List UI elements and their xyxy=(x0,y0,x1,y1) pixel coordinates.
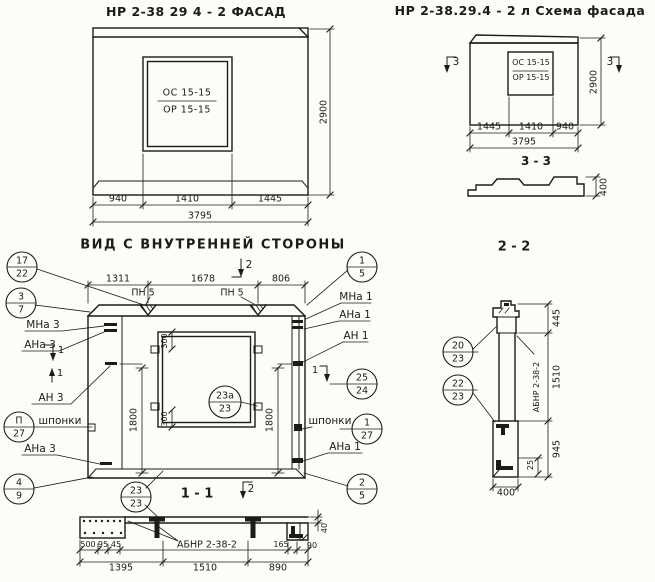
label-mna3: МНа 3 xyxy=(26,320,59,331)
label-ana3-upper: АНа 3 xyxy=(24,340,56,351)
scheme-window-mark-bottom: ОР 15-15 xyxy=(513,74,550,82)
callout-4-9-bottom: 9 xyxy=(16,491,22,501)
callout-17-22-top: 17 xyxy=(16,256,28,266)
label-mna1: МНа 1 xyxy=(339,292,372,303)
label-shponki-right: шпонки xyxy=(309,416,352,427)
s11-dim-45: 45 xyxy=(111,541,121,549)
callout-20-23-top: 20 xyxy=(452,341,464,351)
lifting-loop-label-1: ПН 5 xyxy=(131,288,154,298)
scheme-window-mark-top: ОС 15-15 xyxy=(512,59,550,67)
callout-1-27-bottom: 27 xyxy=(361,431,373,441)
drawing-linework xyxy=(0,0,655,582)
section2-mark-bottom: 2 xyxy=(248,484,255,495)
s11-dim-40: 40 xyxy=(321,523,329,533)
facade-dim-1445: 1445 xyxy=(258,194,282,204)
s11-dim-1510: 1510 xyxy=(193,563,217,573)
section-2-2-title: 2 - 2 xyxy=(498,241,531,254)
label-shponki-left: шпонки xyxy=(39,416,82,427)
scheme-dim-2900: 2900 xyxy=(589,70,599,94)
part-label-abnr: АБНР 2-38-2 xyxy=(177,540,237,550)
callout-1-27-top: 1 xyxy=(364,418,370,428)
section-1-1-title: 1 - 1 xyxy=(181,488,214,501)
label-ana1-upper: АНа 1 xyxy=(339,310,371,321)
callout-23a-23-bottom: 23 xyxy=(219,404,231,414)
s22-dim-445: 445 xyxy=(552,309,562,327)
section2-mark-top: 2 xyxy=(246,260,253,271)
s11-dim-500: 500 xyxy=(80,541,95,549)
drawing-sheet: НР 2-38 29 4 - 2 ФАСАД ОС 15-15 ОР 15-15… xyxy=(0,0,655,582)
s22-dim-945: 945 xyxy=(552,440,562,458)
callout-1-5-bottom: 5 xyxy=(359,269,365,279)
filled-details xyxy=(49,65,622,538)
callout-17-22-bottom: 22 xyxy=(16,269,28,279)
facade-dim-2900: 2900 xyxy=(319,100,329,124)
callout-3-7-top: 3 xyxy=(18,292,24,302)
facade-dim-1410: 1410 xyxy=(175,194,199,204)
scheme-section3-mark-left: 3 xyxy=(453,57,460,68)
callout-p-27-bottom: 27 xyxy=(13,429,25,439)
facade-dim-3795: 3795 xyxy=(188,211,212,221)
callout-22-23-bottom: 23 xyxy=(452,392,464,402)
s11-dim-165: 165 xyxy=(273,541,288,549)
scheme-title: НР 2-38.29.4 - 2 л Схема фасада xyxy=(395,5,646,18)
scheme-dim-1445: 1445 xyxy=(477,122,501,132)
callout-2-5-bottom: 5 xyxy=(359,491,365,501)
s11-dim-890: 890 xyxy=(269,563,287,573)
s11-dim-95: 95 xyxy=(98,541,108,549)
inner-dim-806: 806 xyxy=(272,274,290,284)
label-ana3-lower: АНа 3 xyxy=(24,444,56,455)
callout-4-9-top: 4 xyxy=(16,478,22,488)
callout-25-24-bottom: 24 xyxy=(356,386,368,396)
scheme-dim-1410: 1410 xyxy=(519,122,543,132)
s11-dim-90: 90 xyxy=(307,542,317,550)
label-an1: АН 1 xyxy=(343,331,368,342)
section1-mark-left-upper: 1 xyxy=(58,346,64,356)
s22-dim-25: 25 xyxy=(527,460,535,470)
inner-dim-1678: 1678 xyxy=(191,274,215,284)
facade-window-mark-bottom: ОР 15-15 xyxy=(163,105,211,115)
callout-3-7-bottom: 7 xyxy=(18,305,24,315)
lifting-loop-label-2: ПН 5 xyxy=(220,288,243,298)
section-3-3-title: 3 - 3 xyxy=(521,155,551,167)
callout-23-23-bottom: 23 xyxy=(130,499,142,509)
section1-mark-right: 1 xyxy=(312,366,318,376)
callout-2-5-top: 2 xyxy=(359,478,365,488)
callout-20-23-bottom: 23 xyxy=(452,354,464,364)
window-dim-300-bottom: 300 xyxy=(161,411,169,426)
callout-23a-23-top: 23а xyxy=(216,391,234,401)
dimension-lines xyxy=(4,29,605,566)
label-ana1-lower: АНа 1 xyxy=(329,442,361,453)
callout-23-23-top: 23 xyxy=(130,486,142,496)
section1-mark-left-lower: 1 xyxy=(57,369,63,379)
callout-25-24-top: 25 xyxy=(356,373,368,383)
scheme-dim-940: 940 xyxy=(556,122,574,132)
s22-dim-400: 400 xyxy=(497,488,515,498)
inner-dim-1800-right: 1800 xyxy=(265,408,275,432)
section-3-3-dim-400: 400 xyxy=(599,178,609,196)
s22-part-label-abnr: АБНР 2-38-2 xyxy=(533,362,541,412)
inner-view-title: ВИД С ВНУТРЕННЕЙ СТОРОНЫ xyxy=(80,239,345,252)
inner-dim-1800-left: 1800 xyxy=(129,408,139,432)
callout-1-5-top: 1 xyxy=(359,256,365,266)
s11-dim-1395: 1395 xyxy=(109,563,133,573)
callout-p-27-top: П xyxy=(15,416,22,426)
facade-window-mark-top: ОС 15-15 xyxy=(163,88,212,98)
inner-dim-1311: 1311 xyxy=(106,274,130,284)
scheme-dim-3795: 3795 xyxy=(512,137,536,147)
facade-dim-940: 940 xyxy=(109,194,127,204)
callout-22-23-top: 22 xyxy=(452,379,464,389)
s22-dim-1510: 1510 xyxy=(552,365,562,389)
label-an3: АН 3 xyxy=(38,393,63,404)
scheme-section3-mark-right: 3 xyxy=(607,57,614,68)
facade-title: НР 2-38 29 4 - 2 ФАСАД xyxy=(106,6,286,19)
window-dim-300-top: 300 xyxy=(161,333,169,348)
